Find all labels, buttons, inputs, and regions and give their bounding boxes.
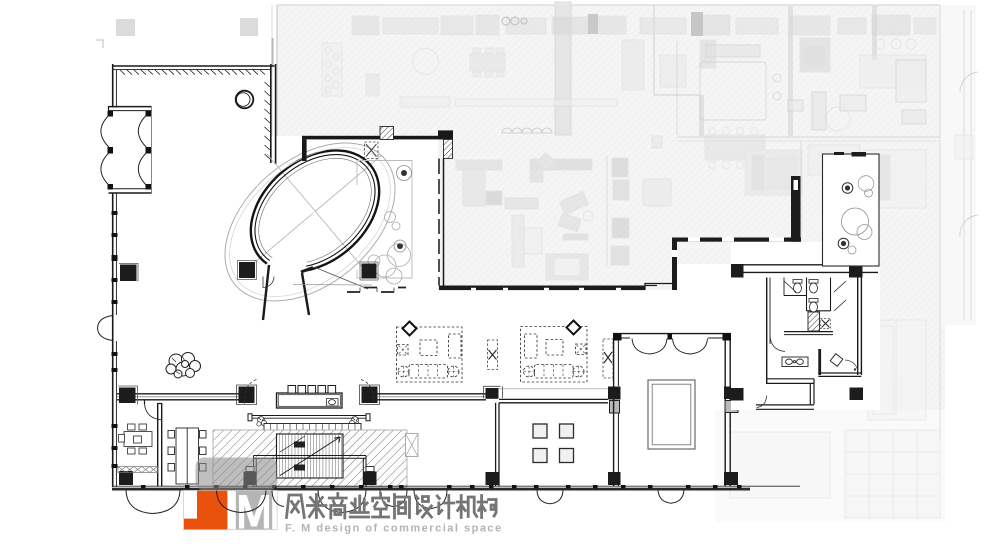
svg-text:F. M design of commercial spac: F. M design of commercial space bbox=[285, 523, 503, 535]
